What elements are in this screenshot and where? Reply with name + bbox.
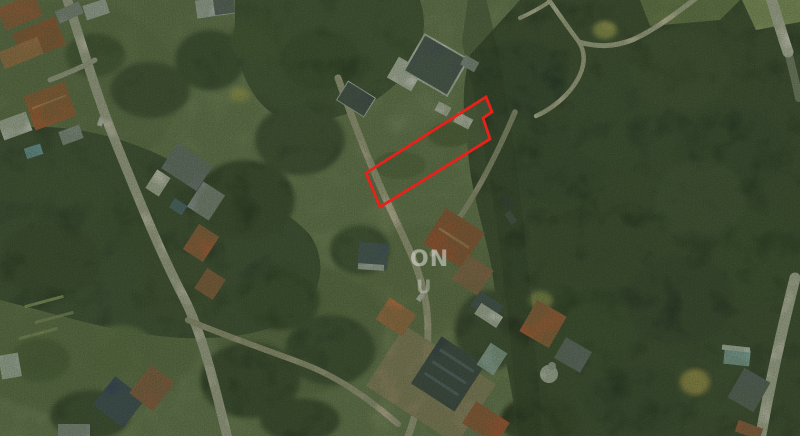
aerial-photo: ON U bbox=[0, 0, 800, 436]
watermark-text-line2: U bbox=[416, 276, 432, 298]
watermark-text-line1: ON bbox=[410, 247, 449, 272]
aerial-map-viewport[interactable]: ON U bbox=[0, 0, 800, 436]
texture-overlay-fine bbox=[0, 0, 800, 436]
